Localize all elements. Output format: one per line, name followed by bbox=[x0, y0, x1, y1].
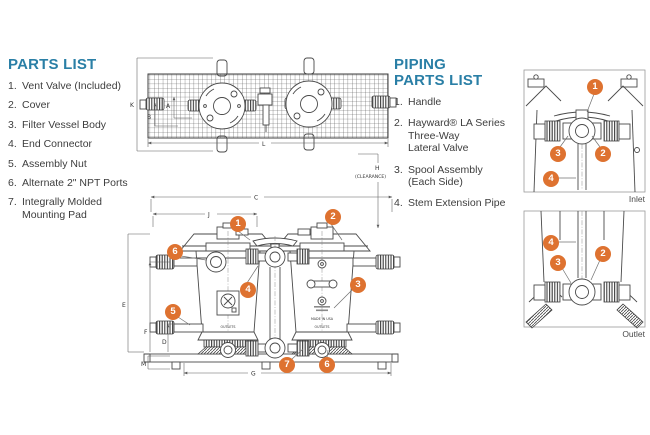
piping-list-item: 4.Stem Extension Pipe bbox=[394, 197, 518, 209]
callout-inlet-stem-pipe: 4 bbox=[543, 171, 559, 187]
callout-outlet-spool: 3 bbox=[550, 255, 566, 271]
dim-label-c: C bbox=[254, 195, 258, 202]
left-vessel-outlets-text: OUTLETS bbox=[220, 325, 235, 329]
piping-list-item: 2.Hayward® LA Series Three-Way Lateral V… bbox=[394, 117, 518, 154]
callout-inlet-lateral-valve: 2 bbox=[595, 146, 611, 162]
callout-inlet-handle: 1 bbox=[587, 79, 603, 95]
piping-list-item: 3.Spool Assembly (Each Side) bbox=[394, 164, 518, 189]
front-view: C J H (CLEARANCE) bbox=[122, 154, 400, 378]
callout-vent-valve: 1 bbox=[230, 216, 246, 232]
callout-assembly-nut: 5 bbox=[165, 304, 181, 320]
piping-parts-list: PIPING PARTS LIST 1.Handle 2.Hayward® LA… bbox=[394, 57, 518, 219]
callout-vessel-body: 3 bbox=[350, 277, 366, 293]
piping-list-item: 1.Handle bbox=[394, 96, 518, 108]
page: PARTS LIST 1.Vent Valve (Included) 2.Cov… bbox=[0, 0, 650, 435]
made-in-usa-text: MADE IN USA bbox=[311, 317, 334, 321]
dim-label-k: K bbox=[130, 102, 135, 109]
dim-label-l: L bbox=[262, 141, 266, 148]
callout-end-connector: 4 bbox=[240, 282, 256, 298]
inlet-detail-drawing bbox=[518, 62, 650, 198]
callout-npt-ports: 6 bbox=[167, 244, 183, 260]
top-view: K B A L bbox=[130, 58, 396, 152]
front-view-dimensions-top: C J H (CLEARANCE) bbox=[151, 154, 392, 228]
piping-parts-list-title: PIPING PARTS LIST bbox=[394, 57, 518, 89]
dim-label-m: M bbox=[141, 361, 146, 368]
dim-label-g: G bbox=[251, 371, 256, 378]
outlet-view-label: Outlet bbox=[599, 329, 645, 339]
callout-inlet-spool: 3 bbox=[550, 146, 566, 162]
dim-label-h: H bbox=[375, 165, 380, 172]
dim-label-e: E bbox=[122, 302, 126, 309]
callout-cover: 2 bbox=[325, 209, 341, 225]
right-vessel-outlets-text: OUTLETS bbox=[314, 325, 329, 329]
dim-label-b: B bbox=[147, 114, 151, 121]
dim-label-j: J bbox=[207, 212, 210, 219]
callout-outlet-stem-pipe: 4 bbox=[543, 235, 559, 251]
dim-label-f: F bbox=[144, 329, 148, 336]
callout-mounting-pad: 7 bbox=[279, 357, 295, 373]
dim-label-d: D bbox=[162, 339, 167, 346]
callout-outlet-lateral-valve: 2 bbox=[595, 246, 611, 262]
callout-npt-ports-bottom: 6 bbox=[319, 357, 335, 373]
main-drawing: K B A L C bbox=[118, 55, 410, 385]
inlet-view-label: Inlet bbox=[599, 194, 645, 204]
outlet-detail-drawing bbox=[518, 202, 650, 332]
dim-label-h-note: (CLEARANCE) bbox=[355, 174, 386, 180]
